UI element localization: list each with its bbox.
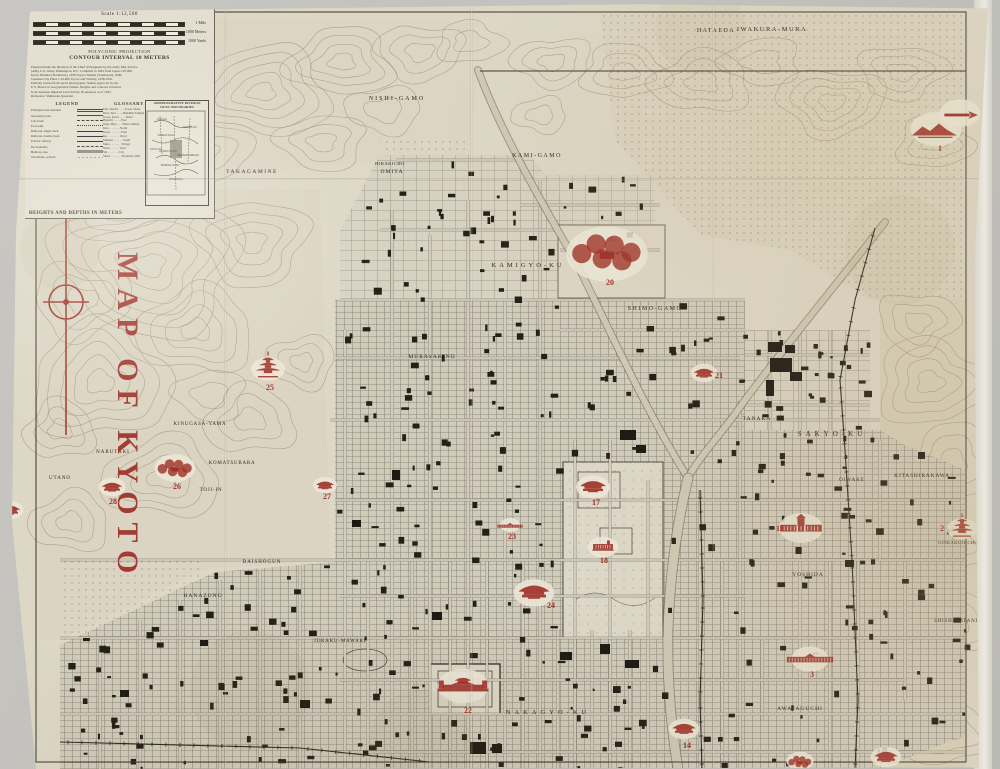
legend-item-sample (77, 125, 103, 126)
legend-item-label: Electric railway (31, 139, 75, 143)
place-label-kinugasa-yama: KINUGASA-YAMA (174, 422, 227, 427)
legend-item-sample (77, 120, 103, 121)
legend-item-label: Built-up area (31, 150, 75, 154)
place-label-toji-in: TOJI-IN (200, 488, 223, 493)
inset-map-drawing: KITA-KUSAKYO-KUKAMIGYO-KUUKYO-KUNAKAGYO-… (146, 110, 206, 196)
legend-item: Woodland, orchard (31, 154, 103, 159)
legend-item-sample (77, 141, 103, 142)
place-label-kamigyo-ku: KAMIGYO-KU (492, 262, 565, 269)
scale-bar-unit: 1000 Yards (188, 38, 206, 43)
place-label-murasakino: MURASAKINO (408, 354, 455, 360)
scale-bar (33, 31, 185, 36)
legend-item-sample (77, 156, 103, 159)
landmark-number-19: 19 (776, 524, 784, 533)
place-label-iwakura-mura: IWAKURA-MURA (737, 26, 807, 33)
place-label-takagamine: TAKAGAMINE (226, 169, 278, 175)
ku-boundaries-inset-map: ADMINISTRATIVE DIVISION OF KU BOUNDARIES… (145, 100, 209, 206)
legend-item-sample (77, 109, 103, 112)
projection-note: POLYCONIC PROJECTION (25, 49, 214, 54)
legend-item-label: Ku boundary (31, 145, 75, 149)
landmark-arrow-icon (940, 99, 981, 127)
place-label-daishogun: DAISHOGUN (243, 560, 282, 565)
legend-item-sample (77, 136, 103, 137)
landmark-number-18: 18 (600, 556, 608, 565)
place-label-utano: UTANO (49, 476, 71, 481)
credit-line: Reference: Shimazaki Quadrant. (31, 94, 208, 98)
place-label-hanazono: HANAZONO (183, 593, 222, 599)
landmark-number-3: 3 (810, 670, 814, 679)
place-label-omiya: OMIYA (380, 169, 403, 175)
inset-ward-label: NAKAGYO-KU (159, 149, 176, 153)
scale-bar-row: 1000 Meters (33, 29, 206, 35)
legend-column: LEGEND Principal road, metaledSecondary … (31, 101, 103, 160)
place-label-kami-gamo: KAMI-GAMO (512, 153, 562, 159)
place-label-shimo-gamo: SHIMO-GAMO (628, 306, 683, 312)
legend-item-sample (77, 115, 103, 116)
place-label-tanaka: TANAKA (743, 416, 772, 422)
scale-label: Scale 1:12,500 (25, 12, 214, 17)
scale-bar-unit: 1 Mile (195, 20, 206, 25)
inset-ward-label: MINAMI-KU (169, 177, 183, 181)
landmark-temple-icon (0, 501, 24, 519)
scale-bar-row: 1000 Yards (33, 38, 206, 44)
scale-bar (33, 40, 185, 45)
place-label-nishi-gamo: NISHI-GAMO (369, 96, 425, 102)
credit-lines: Prepared under the direction of the Chie… (31, 65, 208, 98)
svg-text:MAP OF KYOTO: MAP OF KYOTO (111, 252, 144, 581)
inset-ward-label: SHIMOGYO-KU (161, 163, 180, 167)
place-label-ginkakuji-cho: GINKAKUJI-CHO (938, 540, 979, 545)
scale-bar-row: 1 Mile (33, 20, 206, 26)
scale-bars: 1 Mile1000 Meters1000 Yards (25, 20, 214, 44)
legend-item-label: Secondary road (31, 114, 75, 118)
scale-bar-unit: 1000 Meters (186, 29, 206, 34)
place-label-awataguchi: AWATAGUCHI (777, 706, 823, 712)
map-paper-sheet: HATAEDAIWAKURA-MURANISHI-GAMOKAMI-GAMOTA… (0, 0, 1000, 769)
legend-item-label: Railroad, double track (31, 134, 75, 138)
place-label-hirakicho: HIRAKICHO (375, 161, 405, 166)
place-label-nakagyo-ku: NAKAGYO-KU (506, 709, 590, 716)
place-label-juraku-mawari: JURAKU-MAWARI (314, 639, 366, 644)
landmark-number-28: 28 (109, 497, 117, 506)
map-marginalia-box: Scale 1:12,500 1 Mile1000 Meters1000 Yar… (25, 8, 215, 219)
landmark-number-17: 17 (592, 498, 600, 507)
landmark-number-23: 23 (508, 532, 516, 541)
inset-ward-label: KAMIGYO-KU (158, 133, 175, 137)
place-label-sakyo-ku: SAKYO-KU (798, 430, 867, 438)
legend-item-label: Woodland, orchard (31, 155, 75, 159)
legend-item-sample (77, 146, 103, 147)
scale-bar (33, 22, 185, 27)
place-label-shishigatani: SHISHIGATANI (934, 619, 978, 624)
landmark-number-22: 22 (464, 706, 472, 715)
landmark-number-24: 24 (547, 601, 555, 610)
landmark-number-21: 21 (715, 371, 723, 380)
legend-title: LEGEND (31, 101, 103, 106)
landmark-number-2: 2 (940, 524, 944, 533)
landmark-number-20: 20 (606, 278, 614, 287)
heights-note: HEIGHTS AND DEPTHS IN METERS (29, 211, 122, 216)
landmark-number-14: 14 (683, 741, 691, 750)
legend-item-label: Principal road, metaled (31, 108, 75, 112)
place-label-yoshida: YOSHIDA (792, 572, 824, 578)
legend-item-sample (77, 131, 103, 132)
landmark-number-26: 26 (173, 482, 181, 491)
legend-item-label: Railroad, single track (31, 129, 75, 133)
legend-item-label: Cart track (31, 119, 75, 123)
landmark-number-27: 27 (323, 492, 331, 501)
inset-ward-label: HIGASHIYAMA-KU (177, 153, 199, 157)
legend-item-label: Foot path (31, 124, 75, 128)
inset-ward-label: KITA-KU (157, 117, 167, 121)
place-label-kitashirakawa: KITASHIRAKAWA (894, 473, 950, 479)
photo-of-paper-map: HATAEDAIWAKURA-MURANISHI-GAMOKAMI-GAMOTA… (0, 0, 1000, 769)
map-title-vertical: MAP OF KYOTO (111, 252, 144, 581)
landmark-number-25: 25 (266, 383, 274, 392)
place-label-oiwake: OIWAKE (839, 478, 865, 483)
landmark-temple-icon (871, 747, 902, 768)
inset-ward-label: SAKYO-KU (183, 125, 197, 129)
place-label-komatsubara: KOMATSUBARA (209, 461, 256, 466)
contour-interval-note: CONTOUR INTERVAL 10 METERS (25, 55, 214, 61)
landmark-number-1: 1 (938, 144, 942, 153)
legend-item-sample (77, 150, 103, 153)
